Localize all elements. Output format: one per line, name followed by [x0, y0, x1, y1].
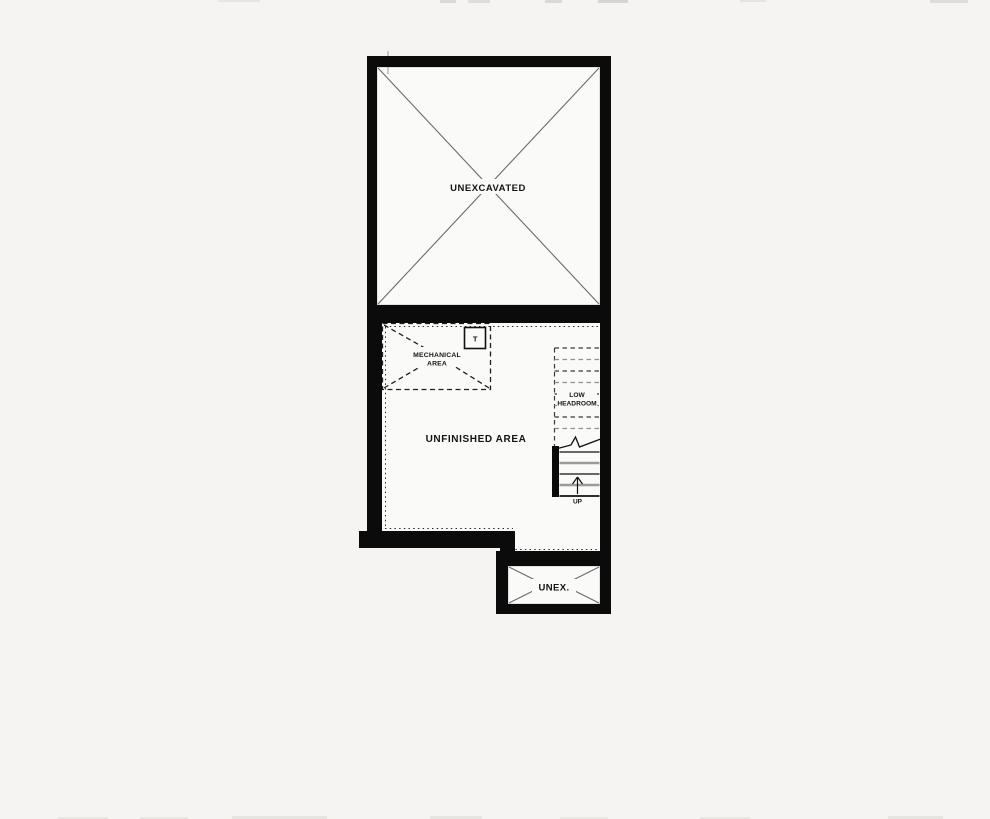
- unfinished-area-label: UNFINISHED AREA: [426, 434, 527, 445]
- mechanical-area-label-line1: MECHANICAL: [413, 352, 461, 359]
- mechanical-area-label-line2: AREA: [427, 361, 447, 368]
- wall-unex-top: [496, 551, 611, 566]
- unexcavated-label: UNEXCAVATED: [450, 183, 526, 194]
- wall-left-lower: [367, 323, 382, 548]
- stair-stringer: [552, 446, 559, 497]
- room-interiors: [377, 67, 600, 604]
- wall-junction: [367, 305, 611, 323]
- wall-left-upper: [367, 56, 377, 305]
- basement-floor-plan: MECHANICAL AREA T LOW HEADROOM: [0, 0, 990, 819]
- wall-top: [367, 56, 611, 67]
- wall-right: [600, 56, 611, 614]
- low-headroom-label-line2: HEADROOM: [557, 401, 597, 408]
- wall-unex-bottom: [496, 604, 611, 614]
- top-edge-artifacts: [218, 0, 968, 3]
- tank-label: T: [473, 335, 478, 344]
- wall-bottom-notch: [359, 531, 515, 548]
- up-label: UP: [573, 499, 583, 506]
- unex-label: UNEX.: [538, 583, 569, 594]
- low-headroom-label-line1: LOW: [569, 392, 585, 399]
- unfinished-interior-extension: [515, 531, 600, 551]
- floor-plan-canvas: MECHANICAL AREA T LOW HEADROOM: [0, 0, 990, 819]
